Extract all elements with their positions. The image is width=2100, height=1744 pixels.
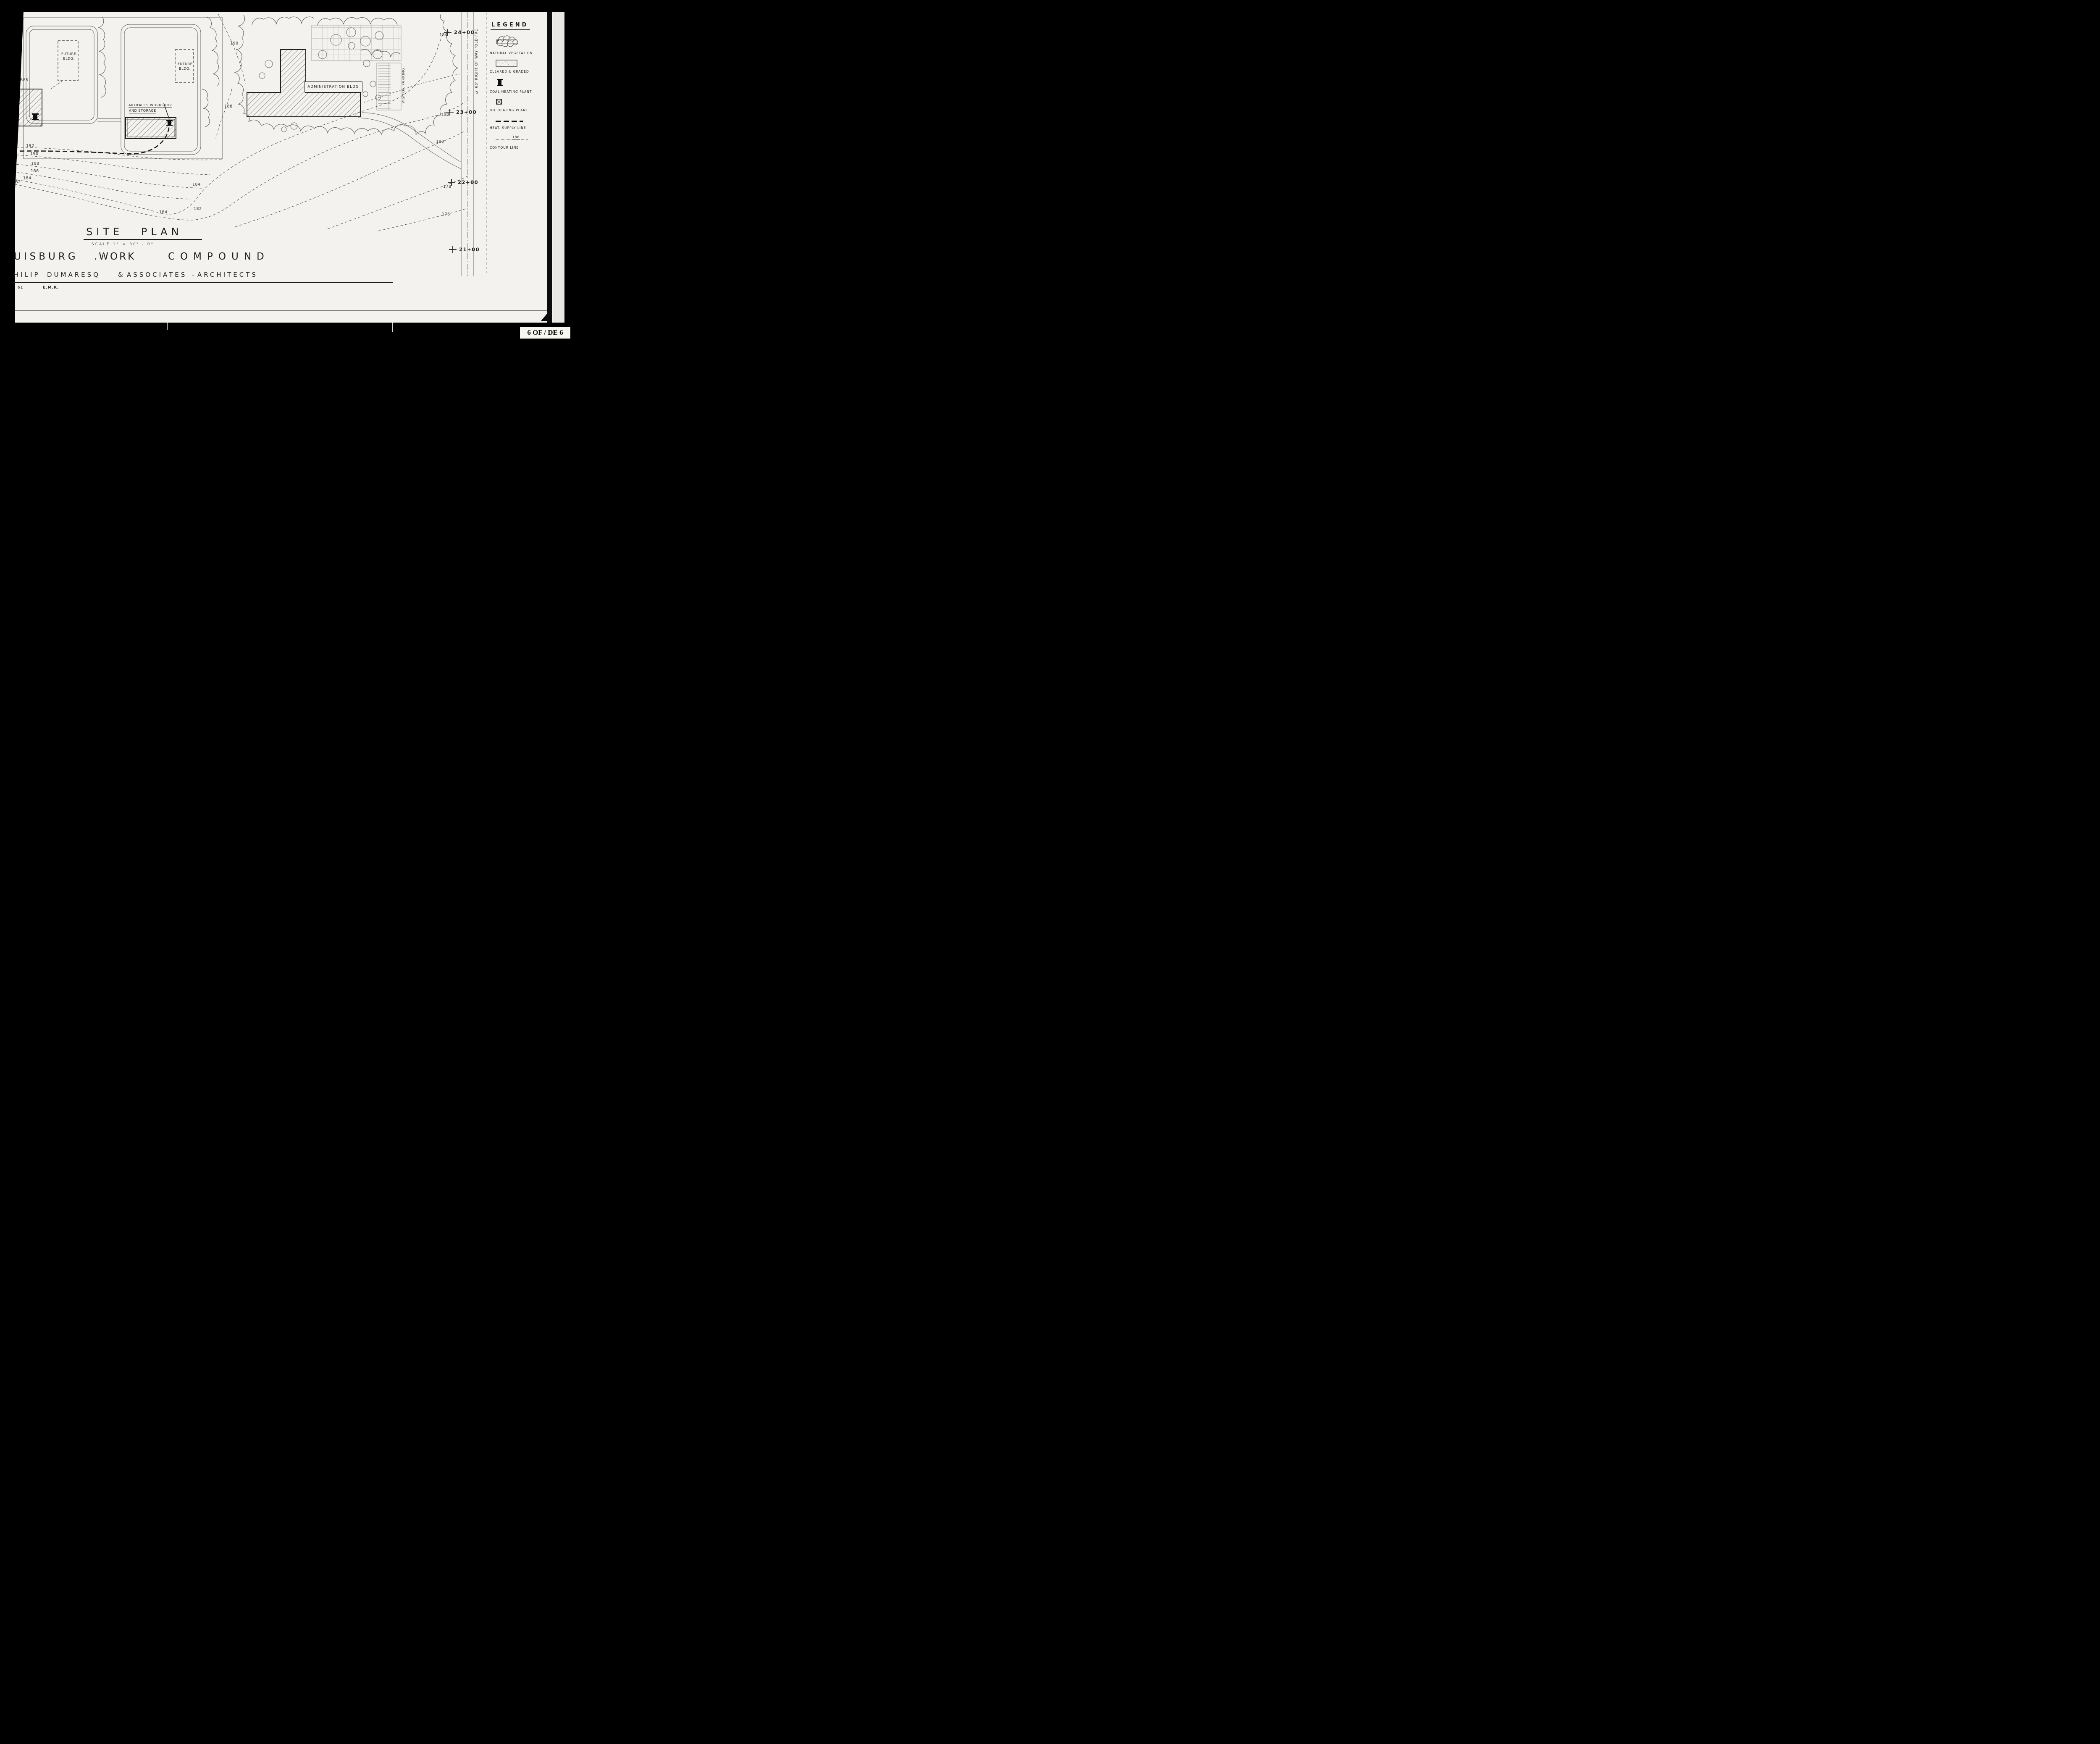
architect-word: ARCHITECTS [197,271,258,278]
scan-border-top [0,0,662,12]
station-label: 22+00 [458,179,478,185]
stippled-rect-icon [496,60,546,68]
legend-item-label: HEAT. SUPPLY LINE [490,126,546,130]
page-number-text: 6 OF / DE 6 [527,328,563,337]
project-title-word: .WORK [94,251,136,262]
contour-elevation-label: 188 [224,104,233,109]
vegetation-cloud-outline [206,17,219,86]
legend-item: 186 CONTOUR LINE [490,134,546,150]
drafter-initials: E.M.K. [43,286,59,290]
future1-leader-line [50,81,62,89]
artifacts-label-line2: AND STORAGE [129,109,156,113]
vegetation-cloud-outline [202,89,210,127]
architect-word: DUMARESQ [47,271,100,278]
vegetation-cloud-outline [252,17,314,25]
tree-symbol [265,60,273,68]
legend-item-label: NATURAL VEGETATION [490,51,546,55]
tree-symbol [363,92,368,97]
right-of-way-road [461,12,486,276]
future-building-1-outline [58,40,78,81]
administration-building-label-box: ADMINISTRATION BLDG [304,81,362,92]
contour-elevation-label: 184 [192,182,201,187]
coal-square-icon [496,78,546,89]
tree-symbol [281,127,286,132]
future-building-2-label-line2: BLDG. [179,67,191,71]
scanned-site-plan-sheet: 24+0023+0022+0021+00 1921901881861841821… [0,0,662,349]
sheet-right-edge [547,12,552,323]
station-label: 24+00 [454,29,475,35]
contour-elevation-label: 176 [442,212,450,217]
contour-dashed-line-icon: 186 [496,134,546,144]
contour-elevation-label: 184 [23,176,31,181]
legend-item-label: COAL HEATING PLANT [490,90,546,94]
contour-elevation-label: 182 [441,113,450,117]
svg-text:186: 186 [512,135,520,139]
graded-terrace-grid [312,25,401,61]
architect-word: ASSOCIATES [127,271,187,278]
right-of-way-label: ℄ 66' RIGHT OF WAY "OLD FRE [475,10,479,94]
contour-elevation-label: 186 [31,169,39,173]
contour-elevation-label: 188 [31,161,39,166]
driveway [358,113,461,169]
architect-word: - [192,271,196,278]
contour-elevation-label: 184 [159,210,168,215]
station-label: 23+00 [456,109,477,115]
project-title-line: UISBURG.WORKCOMPOUND [0,251,662,265]
page-number-stamp: 6 OF / DE 6 [520,327,570,339]
film-artifact-tick [392,323,393,332]
legend-item: OIL HEATING PLANT [490,98,546,112]
future-building-1-label-line2: BLDG. [63,57,75,60]
scan-border-right [564,0,662,349]
artifacts-label-line1: ARTIFACTS WORKSHOP [129,103,172,108]
visitor-parking-label: VISITOR PARKING [402,58,405,103]
legend-item-label: CONTOUR LINE [490,146,546,150]
tree-symbol [370,81,376,87]
contour-elevation-label: 190 [30,152,39,156]
site-plan-drawing: 24+0023+0022+0021+00 1921901881861841821… [0,0,662,349]
site-boundary [24,18,223,159]
contour-elevation-label: 190 [230,41,239,46]
vegetation-cloud-outline [98,17,106,97]
future-building-2-outline [175,50,194,82]
contour-elevation-label: 180 [436,139,444,144]
contour-elevation-label: 192 [26,144,34,148]
legend-item: CLEARED & GRADED [490,60,546,74]
legend-item: NATURAL VEGETATION [490,35,546,55]
contour-elevation-label: 184 [439,33,448,37]
legend-item-label: CLEARED & GRADED [490,70,546,74]
legend-item: COAL HEATING PLANT [490,78,546,94]
legend-item-label: OIL HEATING PLANT [490,108,546,112]
contour-elevation-label: 182 [194,207,202,211]
future-building-1-label-line1: FUTURE. [61,52,78,56]
scale-note: SCALE 1" = 30' - 0" [92,242,154,247]
tree-symbol [259,73,265,79]
architect-line: HILIPDUMARESQ&ASSOCIATES-ARCHITECTS [0,271,662,280]
heavy-dashed-line-icon [496,117,546,125]
vegetation-cloud-outline [318,18,397,25]
administration-building-label: ADMINISTRATION BLDG [307,85,359,89]
note-number: 61 [18,286,23,290]
future-building-2-label-line1: FUTURE [178,62,192,66]
architect-word: HILIP [14,271,40,278]
project-title-word: COMPOUND [168,251,270,262]
legend-title: LEGEND [491,22,530,30]
vegetation-cloud-icon [496,35,546,50]
project-title-word: UISBURG [14,251,79,262]
tree-symbol [291,123,297,129]
drawing-title: SITE PLAN [86,226,183,238]
drawing-title-underline [84,239,202,240]
contour-elevation-label: 178 [443,184,451,189]
legend-items: NATURAL VEGETATION CLEARED & GRADED COAL… [490,35,546,150]
title-block-rule [14,282,393,283]
legend-item: HEAT. SUPPLY LINE [490,117,546,130]
oil-x-square-icon [496,98,546,107]
architect-word: & [118,271,125,278]
film-artifact-tick [167,323,168,330]
legend-panel: LEGEND NATURAL VEGETATION CLEARED & GRAD… [490,20,546,150]
